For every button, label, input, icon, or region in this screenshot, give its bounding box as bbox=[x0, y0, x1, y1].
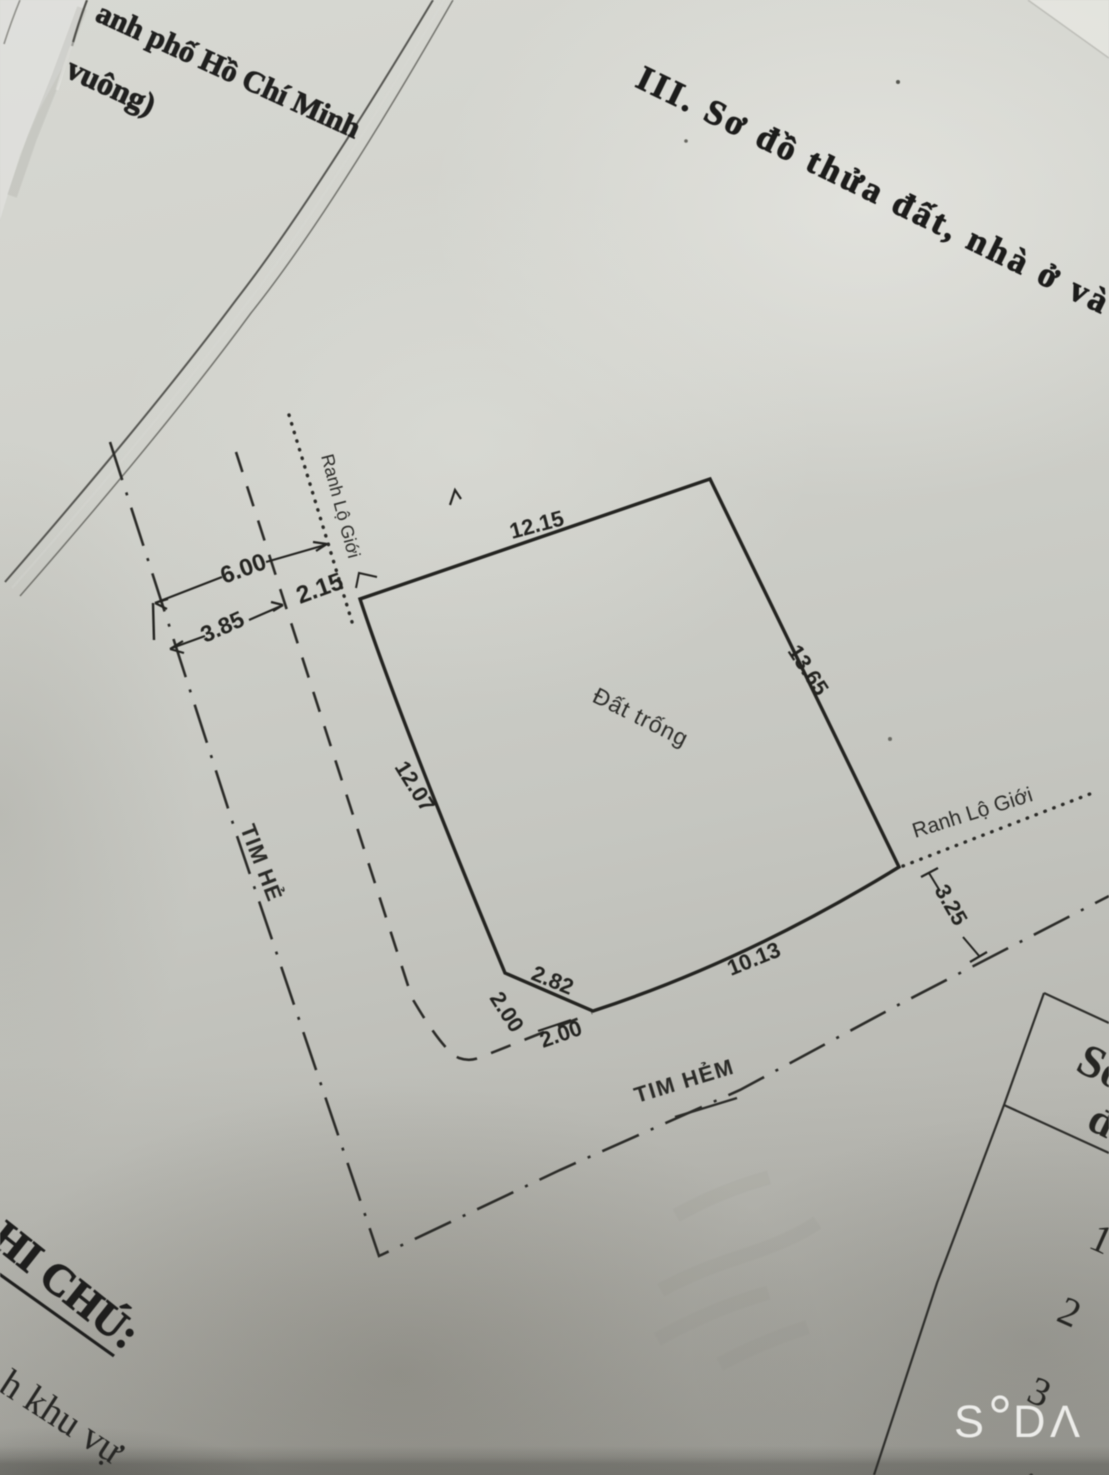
svg-text:3.85: 3.85 bbox=[196, 606, 248, 648]
svg-text:Đất trống: Đất trống bbox=[589, 682, 693, 751]
svg-text:2: 2 bbox=[1051, 1287, 1088, 1336]
svg-text:13.65: 13.65 bbox=[783, 640, 834, 700]
svg-text:Ranh Lộ Giới: Ranh Lộ Giới bbox=[910, 783, 1036, 842]
svg-text:2.15: 2.15 bbox=[293, 568, 347, 610]
svg-text:D: D bbox=[1013, 1396, 1046, 1447]
svg-text:10.13: 10.13 bbox=[724, 937, 784, 981]
svg-text:1: 1 bbox=[1083, 1214, 1109, 1263]
svg-text:Sơ: Sơ bbox=[1070, 1033, 1109, 1101]
svg-text:2.00: 2.00 bbox=[536, 1015, 585, 1053]
svg-text:HI CHÚ:: HI CHÚ: bbox=[0, 1211, 149, 1358]
svg-text:2.00: 2.00 bbox=[485, 987, 529, 1037]
svg-text:III. Sơ đồ thửa đất, nhà ở và: III. Sơ đồ thửa đất, nhà ở và bbox=[630, 58, 1109, 322]
svg-text:6.00: 6.00 bbox=[217, 548, 270, 589]
svg-text:vuông): vuông) bbox=[61, 50, 162, 122]
svg-text:h khu vự: h khu vự bbox=[0, 1361, 133, 1473]
svg-text:12.07: 12.07 bbox=[390, 756, 440, 816]
svg-text:anh phố Hồ Chí Minh: anh phố Hồ Chí Minh bbox=[91, 0, 366, 145]
svg-text:Λ: Λ bbox=[1050, 1396, 1080, 1447]
svg-text:TIM HẺM: TIM HẺM bbox=[631, 1054, 737, 1108]
svg-text:S: S bbox=[954, 1396, 984, 1447]
svg-text:TIM HẺ: TIM HẺ bbox=[235, 821, 287, 905]
svg-text:4: 4 bbox=[1004, 1459, 1041, 1475]
svg-text:đ: đ bbox=[1081, 1093, 1109, 1148]
svg-text:3.25: 3.25 bbox=[930, 880, 973, 930]
